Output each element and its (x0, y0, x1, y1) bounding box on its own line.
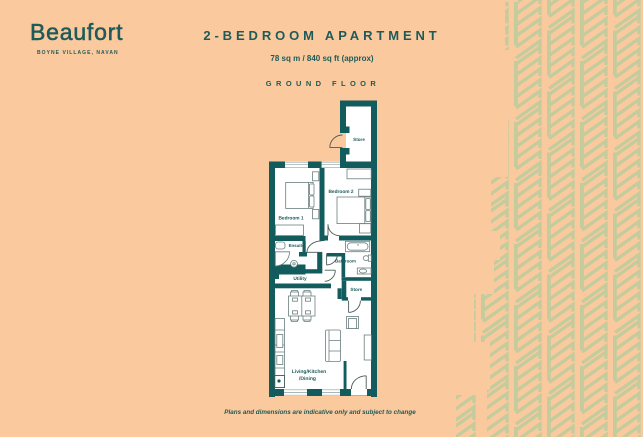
svg-text:Bedroom 2: Bedroom 2 (328, 189, 353, 195)
svg-text:/Dining: /Dining (299, 376, 316, 382)
svg-text:Ensuite: Ensuite (289, 243, 305, 248)
svg-text:Utility: Utility (293, 276, 307, 282)
svg-text:Store: Store (353, 137, 365, 142)
svg-text:Living/Kitchen: Living/Kitchen (292, 369, 326, 375)
svg-text:Store: Store (350, 287, 362, 292)
svg-text:Bedroom 1: Bedroom 1 (278, 216, 303, 222)
svg-text:Bathroom: Bathroom (335, 259, 356, 264)
